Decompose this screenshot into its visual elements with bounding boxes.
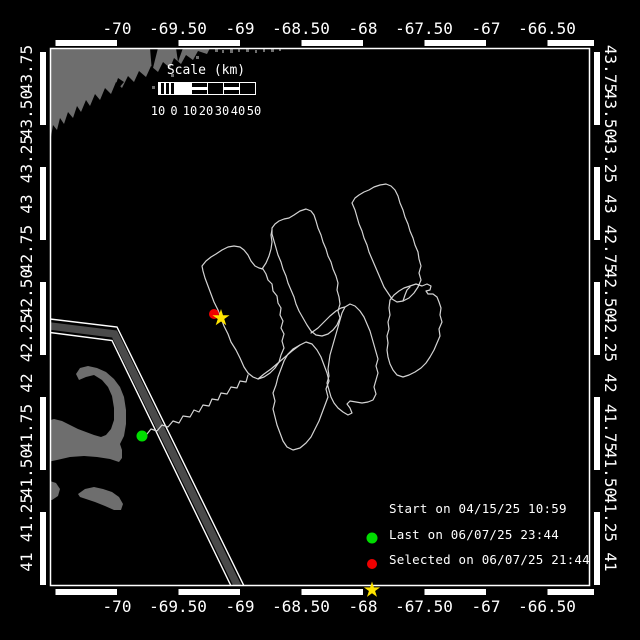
lon-tick-label-bottom: -68 — [349, 599, 378, 615]
scale-bar-number: 10 — [183, 105, 197, 118]
lon-tick-label-bottom: -66.50 — [518, 599, 576, 615]
lat-tick-label-left: 41.75 — [19, 404, 35, 452]
scale-bar-number: 20 — [199, 105, 213, 118]
legend-item-start: Start on 04/15/25 10:59 — [362, 499, 567, 517]
lon-tick-label-bottom: -68.50 — [272, 599, 330, 615]
shipping-lane-band — [50, 326, 240, 590]
lat-tick-label-left: 43 — [19, 194, 35, 213]
lat-tick-label-right: 42.75 — [602, 225, 618, 273]
lat-tick-label-right: 42.50 — [602, 269, 618, 317]
legend-label-selected: Selected on 06/07/25 21:44 — [389, 552, 590, 567]
track-map-window: Scale (km) 1001020304050 Start on 04/15/… — [0, 0, 640, 640]
lat-tick-label-left: 43.25 — [19, 135, 35, 183]
vessel-track-path[interactable] — [352, 184, 421, 302]
scale-bar-segment — [223, 83, 239, 94]
lat-tick-label-left: 41 — [19, 552, 35, 571]
legend-label-last: Last on 06/07/25 23:44 — [389, 527, 559, 542]
legend-item-last: Last on 06/07/25 23:44 — [362, 525, 559, 543]
lat-tick-label-right: 41 — [602, 552, 618, 571]
start-marker[interactable] — [137, 431, 148, 442]
scale-title: Scale (km) — [167, 64, 245, 78]
lat-tick-label-left: 43.50 — [19, 90, 35, 138]
lon-tick-label-top: -68.50 — [272, 21, 330, 37]
lat-tick-label-right: 42 — [602, 373, 618, 392]
lat-tick-label-left: 42.75 — [19, 225, 35, 273]
lat-tick-label-right: 43.25 — [602, 135, 618, 183]
vessel-track-path[interactable] — [262, 230, 272, 269]
legend-item-selected: Selected on 06/07/25 21:44 — [362, 550, 590, 568]
lon-tick-label-bottom: -67 — [472, 599, 501, 615]
legend-label-start: Start on 04/15/25 10:59 — [389, 501, 567, 516]
scale-bar-number: 30 — [215, 105, 229, 118]
lon-tick-label-top: -66.50 — [518, 21, 576, 37]
lat-tick-label-right: 43 — [602, 194, 618, 213]
scale-bar-number: 50 — [247, 105, 261, 118]
scale-bar-segment — [239, 83, 255, 94]
scale-bar-segment — [159, 83, 175, 94]
lat-tick-label-right: 42.25 — [602, 314, 618, 362]
lon-tick-label-top: -69 — [226, 21, 255, 37]
lon-tick-label-top: -67 — [472, 21, 501, 37]
last-dot-icon — [362, 525, 382, 543]
coastline-land — [47, 366, 126, 462]
vessel-track-path[interactable] — [273, 342, 329, 450]
scale-bar-number: 0 — [170, 105, 177, 118]
lat-tick-label-right: 43.50 — [602, 90, 618, 138]
lon-tick-label-bottom: -67.50 — [395, 599, 453, 615]
start-dot-icon — [362, 499, 382, 517]
lat-tick-label-left: 41.50 — [19, 449, 35, 497]
lat-tick-label-right: 41.75 — [602, 404, 618, 452]
scale-bar-number: 10 — [151, 105, 165, 118]
lat-tick-label-right: 43.75 — [602, 45, 618, 93]
lat-tick-label-left: 42.50 — [19, 269, 35, 317]
scale-bar-number: 40 — [231, 105, 245, 118]
lat-tick-label-left: 42 — [19, 373, 35, 392]
lon-tick-label-bottom: -70 — [103, 599, 132, 615]
map-canvas[interactable] — [0, 0, 640, 640]
vessel-track-path[interactable] — [327, 304, 378, 415]
coastline-land — [78, 487, 123, 510]
lon-tick-label-top: -67.50 — [395, 21, 453, 37]
scale-bar-segment — [175, 83, 191, 94]
scale-bar-segment — [191, 83, 207, 94]
lon-tick-label-top: -68 — [349, 21, 378, 37]
selected-star-icon — [362, 550, 382, 568]
lat-tick-label-right: 41.50 — [602, 449, 618, 497]
lon-tick-label-bottom: -69.50 — [149, 599, 207, 615]
scale-bar — [158, 82, 256, 95]
coastline-land — [47, 481, 60, 500]
scale-bar-segment — [207, 83, 223, 94]
lat-tick-label-left: 41.25 — [19, 494, 35, 542]
lon-tick-label-bottom: -69 — [226, 599, 255, 615]
lon-tick-label-top: -69.50 — [149, 21, 207, 37]
shipping-lane-line — [50, 333, 233, 591]
lon-tick-label-top: -70 — [103, 21, 132, 37]
vessel-track-path[interactable] — [387, 284, 442, 377]
lat-tick-label-left: 43.75 — [19, 45, 35, 93]
lat-tick-label-right: 41.25 — [602, 494, 618, 542]
lat-tick-label-left: 42.25 — [19, 314, 35, 362]
